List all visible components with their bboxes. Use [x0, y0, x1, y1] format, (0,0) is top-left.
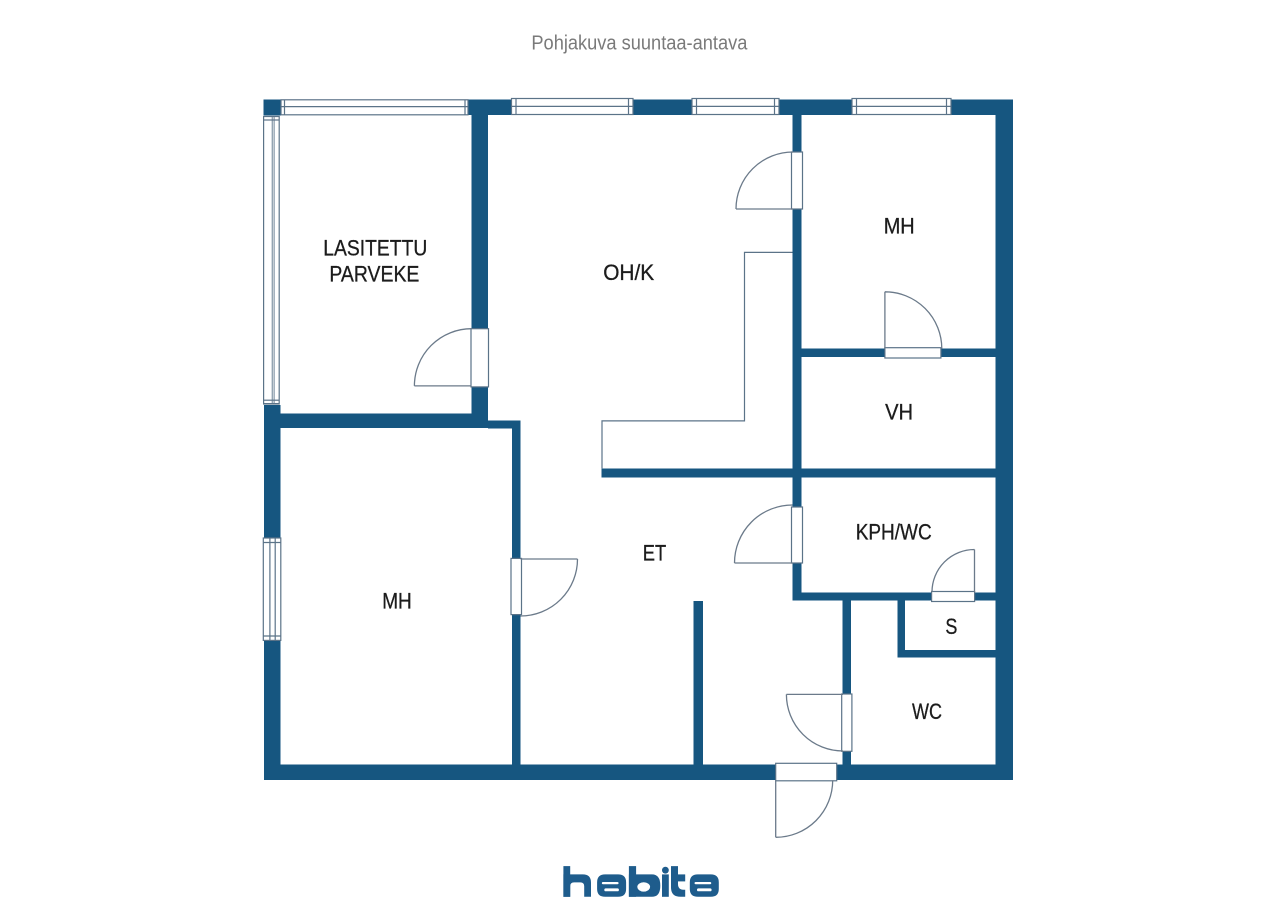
- svg-text:Pohjakuva suuntaa-antava: Pohjakuva suuntaa-antava: [531, 33, 748, 55]
- svg-text:S: S: [945, 614, 957, 639]
- svg-text:PARVEKE: PARVEKE: [329, 262, 419, 287]
- svg-text:WC: WC: [912, 699, 942, 724]
- svg-text:MH: MH: [382, 589, 412, 614]
- svg-text:VH: VH: [885, 400, 913, 425]
- svg-text:OH/K: OH/K: [603, 260, 654, 285]
- svg-text:LASITETTU: LASITETTU: [323, 236, 427, 261]
- svg-text:KPH/WC: KPH/WC: [856, 520, 932, 545]
- svg-text:ET: ET: [643, 541, 667, 566]
- svg-text:MH: MH: [884, 213, 915, 238]
